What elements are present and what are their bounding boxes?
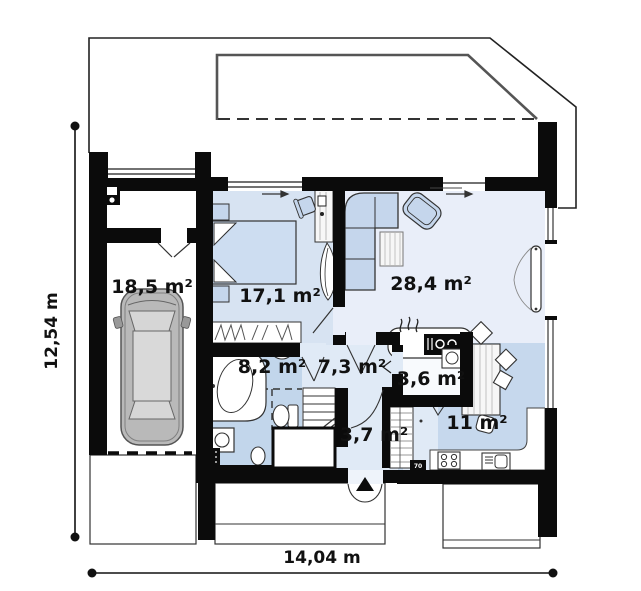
living-area-label: 28,4 m²: [390, 273, 472, 295]
floor-drain: [420, 420, 423, 423]
desk-icon: [315, 190, 333, 242]
height-dimension: 12,54 m: [42, 122, 80, 542]
car-icon: [113, 289, 191, 445]
dining-window: [545, 320, 557, 408]
toilet-icon: [273, 405, 298, 427]
vent-tag-label: 70: [414, 463, 422, 470]
boiler-icon: [442, 345, 462, 368]
understair-closet: [273, 428, 335, 468]
width-dimension: 14,04 m: [88, 548, 558, 578]
floor-plan-canvas: 70 18,5 m² 17,1 m² 28,4 m² 8,2 m² 7,3 m²…: [0, 0, 641, 591]
kitchen-sink-icon: [482, 453, 510, 472]
stove-icon: [438, 452, 460, 469]
kitchen-area-label: 11 m²: [446, 412, 507, 434]
vent-tag: [212, 448, 220, 466]
entry-area-label: 3,7 m²: [340, 424, 408, 446]
floor-plan: 70 18,5 m² 17,1 m² 28,4 m² 8,2 m² 7,3 m²…: [0, 0, 641, 591]
double-bed-icon: [212, 221, 296, 284]
garage-area-label: 18,5 m²: [111, 276, 193, 298]
utility-area-label: 3,6 m²: [397, 368, 465, 390]
kitchen-terrace: [443, 484, 540, 548]
storage-window: [108, 166, 195, 178]
garage-inner-door: [156, 228, 192, 257]
living-window-top: [545, 208, 557, 240]
bedroom-area-label: 17,1 m²: [239, 285, 321, 307]
electric-box-icon: [104, 184, 120, 205]
driveway: [90, 455, 196, 544]
hand-basin-icon: [251, 447, 265, 465]
vent-tag-70: 70: [410, 460, 426, 470]
width-dimension-label: 14,04 m: [283, 548, 360, 568]
wardrobe-icon: [211, 322, 301, 343]
rug-icon: [380, 232, 403, 266]
bathroom-area-label: 8,2 m²: [238, 356, 306, 378]
bedroom-window: [228, 177, 302, 191]
height-dimension-label: 12,54 m: [42, 292, 62, 369]
hall-area-label: 7,3 m²: [318, 356, 386, 378]
